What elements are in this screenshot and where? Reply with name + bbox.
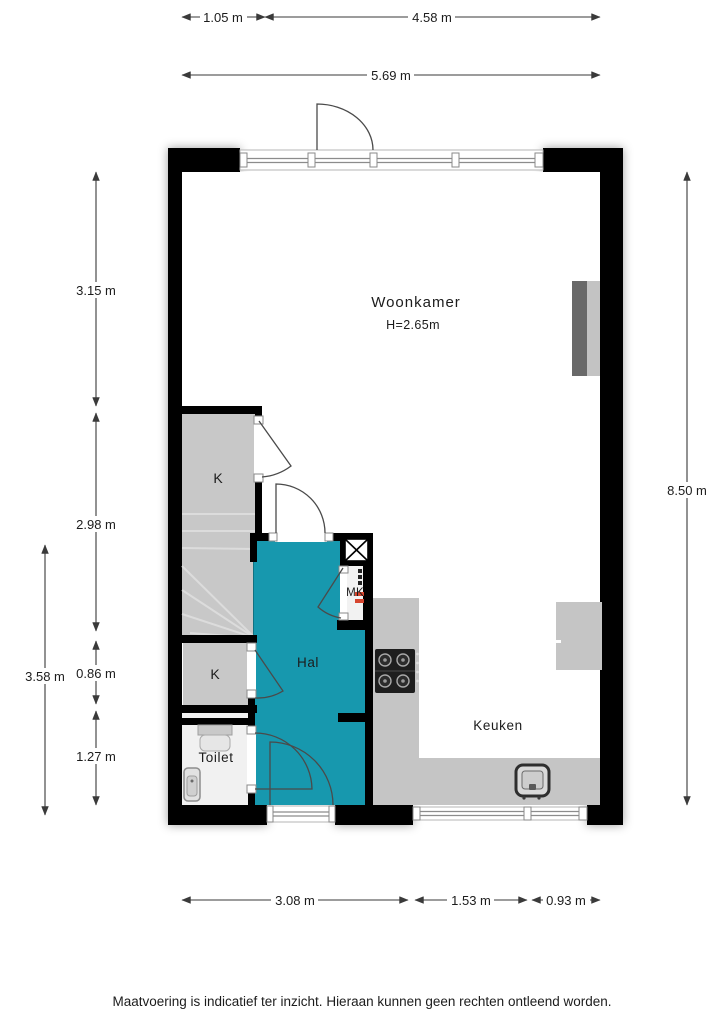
window-mullion [452, 153, 459, 167]
stove-knob [416, 662, 419, 665]
dim-right: 8.50 m [667, 483, 707, 498]
wall-top-left-block [168, 148, 240, 172]
toilet-label: Toilet [198, 750, 233, 765]
stove-knob [416, 671, 419, 674]
kitchen-sink [516, 765, 549, 800]
toilet-cistern [198, 725, 232, 735]
closet-lower-bottom-wall [177, 705, 257, 713]
window-mullion [308, 153, 315, 167]
stove-burner-center [401, 658, 405, 662]
door-jamb [247, 643, 256, 651]
hal-label: Hal [297, 655, 319, 670]
door-jamb [254, 474, 263, 482]
bottom-window-band [413, 807, 587, 820]
dim-left-2: 2.98 m [76, 517, 116, 532]
dim-left-4: 1.27 m [76, 749, 116, 764]
dim-top-left: 1.05 m [203, 10, 243, 25]
toilet-top-wall [180, 718, 255, 725]
stove [375, 649, 419, 693]
toilet-bowl [200, 735, 230, 751]
wall-bottom-mid [335, 805, 413, 825]
toilet-door-opening [247, 733, 256, 787]
wall-top-right-block [543, 148, 623, 172]
sink-tap-handle [522, 796, 525, 799]
woonkamer-label: Woonkamer [371, 294, 461, 311]
meter-panel-dot [358, 581, 362, 585]
dim-bottom-mid: 1.53 m [451, 893, 491, 908]
wall-left [168, 148, 182, 825]
door-jamb [269, 533, 277, 541]
dim-top-total: 5.69 m [371, 68, 411, 83]
meterkast-bottom-wall [337, 620, 373, 630]
hal-door-opening [275, 532, 327, 542]
meter-panel-dot [358, 575, 362, 579]
front-door-jamb [267, 806, 273, 822]
dim-bottom-right: 0.93 m [546, 893, 586, 908]
woonkamer-cabinet-light [586, 281, 600, 376]
kitchen-cabinet-divider [556, 640, 561, 643]
meterkast-label: MK [346, 587, 364, 599]
front-door-jamb [329, 806, 335, 822]
sink-tap-handle [537, 796, 540, 799]
stove-burner-center [401, 679, 405, 683]
meter-panel-dot [358, 569, 362, 573]
meterkast-door-jamb [339, 613, 348, 620]
window-mullion [370, 153, 377, 167]
window-mullion [413, 807, 420, 820]
closet-upper-top-wall [182, 406, 262, 414]
hal-kitchen-wall-stub [338, 713, 367, 722]
window-mullion [535, 153, 543, 167]
door-jamb [247, 726, 256, 734]
dim-bottom-left: 3.08 m [275, 893, 315, 908]
stove-burner-center [383, 658, 387, 662]
window-mullion [579, 807, 587, 820]
wall-bottom-left [168, 805, 267, 825]
disclaimer-text: Maatvoering is indicatief ter inzicht. H… [0, 994, 724, 1009]
front-door-threshold [267, 806, 335, 822]
wall-bottom-right [587, 803, 623, 825]
dim-left-3: 0.86 m [76, 666, 116, 681]
woonkamer-cabinet-dark [572, 281, 587, 376]
floor-plan: Woonkamer H=2.65m Keuken Hal Toilet K K … [168, 104, 623, 825]
dim-top-right: 4.58 m [412, 10, 452, 25]
closet-upper-right-wall-b [255, 476, 262, 533]
meterkast-right-wall [363, 566, 373, 620]
door-jamb [254, 416, 263, 424]
stair-tread [182, 548, 255, 549]
dim-left-outer: 3.58 m [25, 669, 65, 684]
stove-burner-center [383, 679, 387, 683]
stove-knob [416, 653, 419, 656]
floor-plan-canvas: Woonkamer H=2.65m Keuken Hal Toilet K K … [0, 0, 724, 1024]
kitchen-cabinet-block [556, 602, 602, 670]
sink-faucet [529, 784, 536, 790]
stairs-bottom-wall [177, 635, 257, 643]
top-window-band [240, 150, 543, 170]
door-jamb [247, 690, 256, 698]
closet-upper-door-opening [254, 423, 263, 476]
stove-knob [416, 680, 419, 683]
door-jamb [325, 533, 333, 541]
hal-corner-stub [250, 533, 257, 562]
door-jamb [247, 785, 256, 793]
toilet-hand-basin-inner [187, 776, 197, 796]
fuse-box-red [355, 599, 364, 603]
window-mullion [524, 807, 531, 820]
kitchen-counter-bottom [419, 758, 600, 805]
toilet-hand-basin-tap [191, 780, 194, 783]
balcony-door-swing [317, 104, 373, 150]
woonkamer-height-label: H=2.65m [386, 318, 440, 332]
duct-shaft [345, 539, 368, 561]
keuken-label: Keuken [473, 718, 522, 733]
wall-right [600, 148, 623, 825]
closet-upper-label: K [213, 470, 223, 486]
closet-lower-label: K [210, 666, 220, 682]
window-mullion [240, 153, 247, 167]
dim-left-1: 3.15 m [76, 283, 116, 298]
kitchen-counter-left [373, 598, 419, 805]
